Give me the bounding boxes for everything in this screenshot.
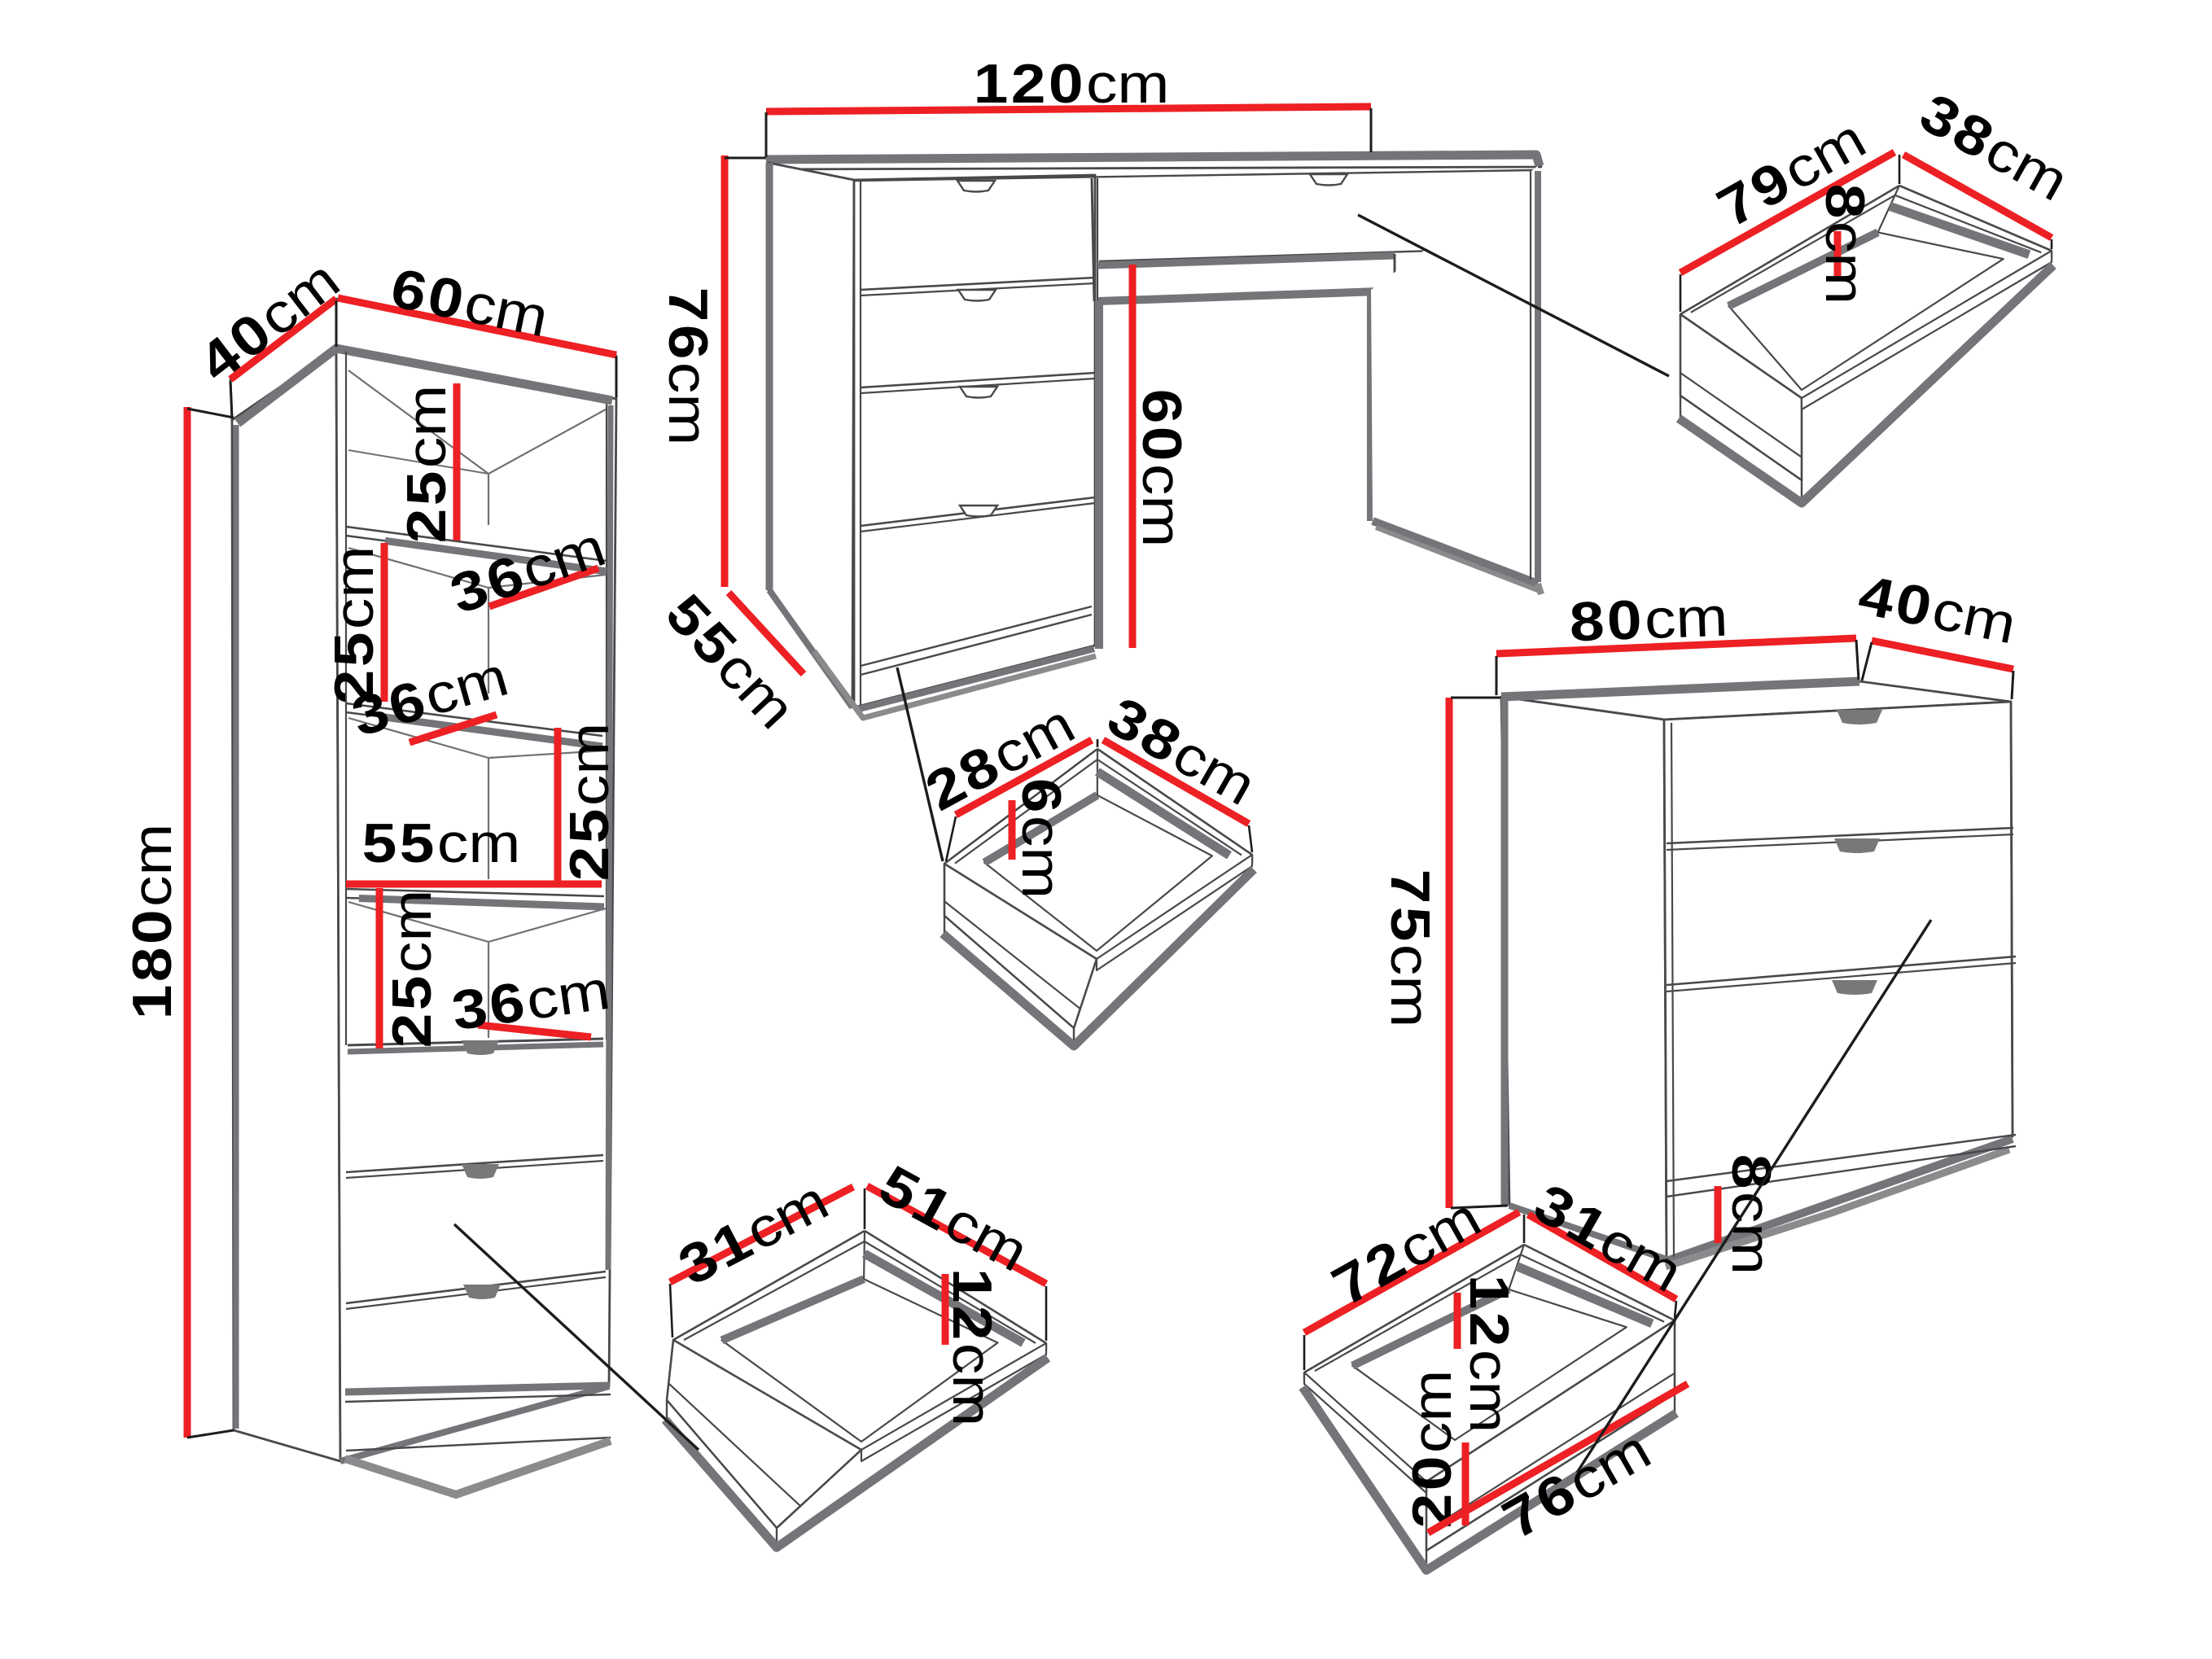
svg-text:25cm: 25cm: [558, 723, 620, 882]
svg-text:6cm: 6cm: [1010, 778, 1072, 900]
svg-text:55cm: 55cm: [362, 812, 521, 874]
svg-text:75cm: 75cm: [1379, 869, 1441, 1028]
svg-text:25cm: 25cm: [381, 890, 443, 1048]
svg-text:25cm: 25cm: [396, 385, 458, 544]
svg-text:8cm: 8cm: [1814, 184, 1876, 305]
svg-text:120cm: 120cm: [974, 53, 1170, 115]
svg-text:8cm: 8cm: [1720, 1154, 1782, 1276]
svg-text:60cm: 60cm: [1131, 389, 1193, 548]
svg-text:20cm: 20cm: [1401, 1370, 1463, 1529]
svg-text:180cm: 180cm: [121, 824, 183, 1020]
svg-text:76cm: 76cm: [657, 287, 719, 446]
svg-text:80cm: 80cm: [1568, 586, 1728, 654]
svg-text:12cm: 12cm: [941, 1268, 1003, 1427]
svg-text:12cm: 12cm: [1458, 1275, 1520, 1434]
